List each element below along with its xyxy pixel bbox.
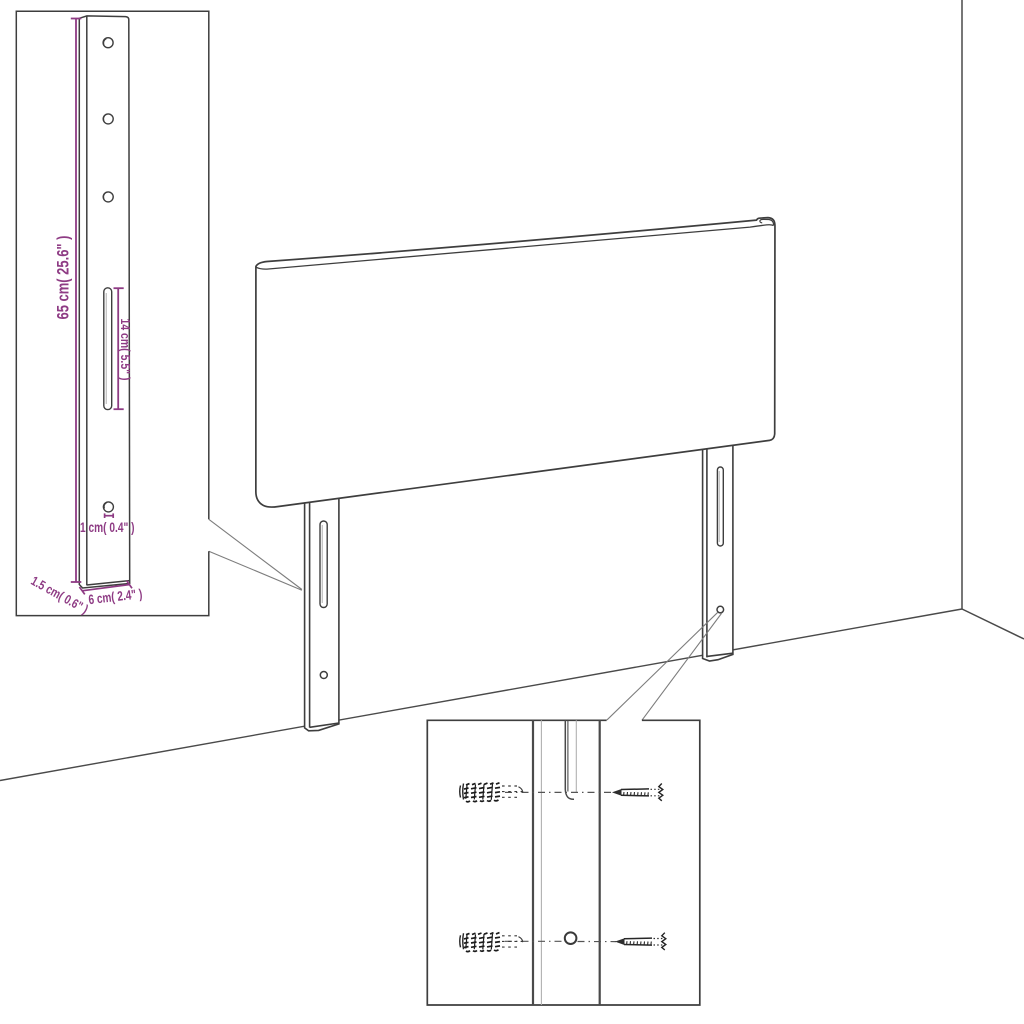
svg-text:65 cm( 25.6" ): 65 cm( 25.6" ) [54, 236, 72, 320]
svg-text:1 cm( 0.4" ): 1 cm( 0.4" ) [80, 520, 135, 535]
svg-text:14 cm( 5.5" ): 14 cm( 5.5" ) [118, 319, 133, 381]
